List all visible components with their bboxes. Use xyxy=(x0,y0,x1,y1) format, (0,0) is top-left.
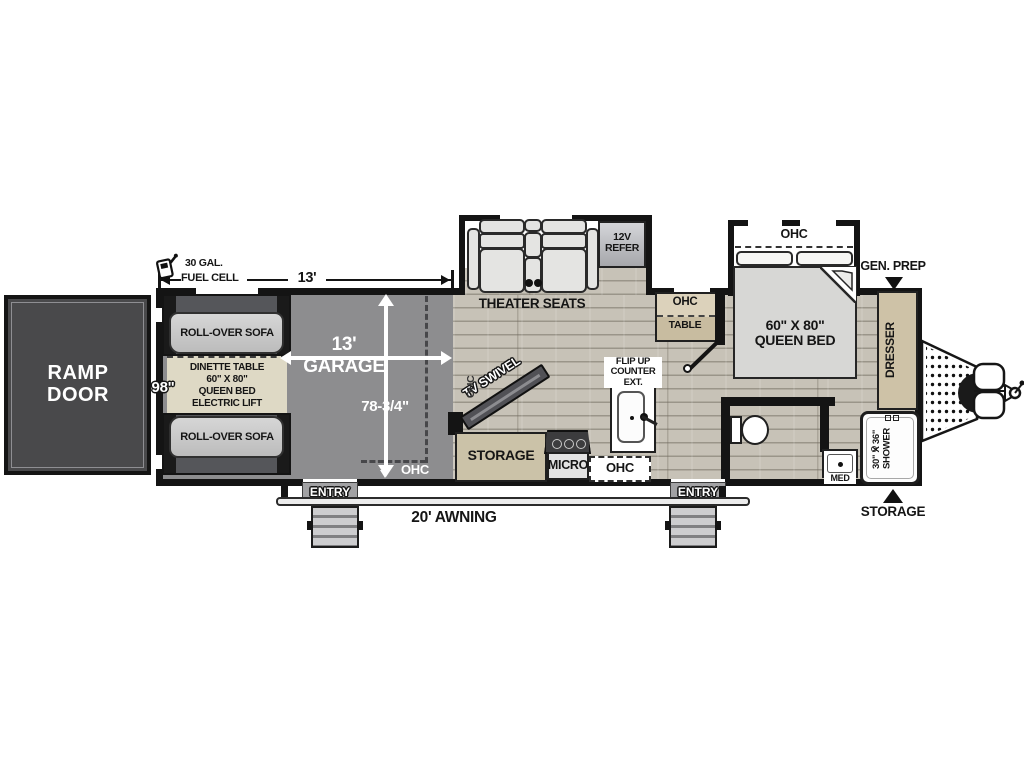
garage-height-arrow-shaft xyxy=(384,300,388,467)
gen-prep-arrow xyxy=(885,277,903,290)
flip-up-counter-label: FLIP UP COUNTER EXT. xyxy=(604,357,662,388)
fuel-amount-label: 30 GAL. xyxy=(185,258,241,269)
rv-floorplan: RAMP DOOR ROLL-OVER SOFA DINETTE TABLE 6… xyxy=(0,0,1024,768)
entry-steps-left xyxy=(311,506,359,548)
gen-prep-label: GEN. PREP xyxy=(858,260,928,274)
dim-tick-right xyxy=(451,270,454,289)
console-mid xyxy=(524,232,542,258)
bed-slide-window-left xyxy=(748,220,782,226)
arrow-right xyxy=(441,351,452,365)
step-lug xyxy=(665,521,671,530)
queen-bed-label: 60" X 80" QUEEN BED xyxy=(737,318,853,348)
entry-door-left: ENTRY xyxy=(302,482,358,498)
fuel-cell-label: FUEL CELL xyxy=(181,273,247,285)
seatcushion-left xyxy=(479,248,525,293)
storage-rear-label: STORAGE xyxy=(852,505,934,520)
ohc-table-top-label: OHC xyxy=(655,296,715,308)
kitchen-storage-label: STORAGE xyxy=(457,448,545,463)
burner xyxy=(552,439,562,449)
garage-ohc-dash-vertical xyxy=(425,296,428,463)
dinette-label: DINETTE TABLE 60" X 80" QUEEN BED ELECTR… xyxy=(170,362,284,410)
bath-wall-horizontal xyxy=(721,397,835,406)
step-lug xyxy=(307,521,313,530)
cupholder-right xyxy=(534,279,542,287)
burner xyxy=(564,439,574,449)
ramp-door-label: RAMP DOOR xyxy=(24,363,132,406)
living-ohc-side-label: OHC xyxy=(466,371,481,403)
bed-ohc-dash xyxy=(735,246,853,248)
shower-label: 30" X 36" SHOWER xyxy=(872,420,910,478)
hitch-assembly xyxy=(915,335,1024,447)
bath-wall-left xyxy=(721,397,730,479)
cupholder-left xyxy=(525,279,533,287)
toilet-bowl xyxy=(741,415,769,445)
bath-wall-mid xyxy=(820,404,829,452)
burner xyxy=(576,439,586,449)
bed-ohc-label: OHC xyxy=(734,228,854,242)
bedroom-wall-upper xyxy=(715,292,725,345)
garage-ohc-rear-label: OHC xyxy=(394,463,436,477)
headrest-left xyxy=(479,219,525,234)
microwave-label: MICRO xyxy=(546,459,590,473)
theater-seats xyxy=(467,219,599,293)
seatback-left xyxy=(479,233,525,249)
step-lug xyxy=(715,521,721,530)
awning-rail xyxy=(276,497,750,506)
step-lug xyxy=(357,521,363,530)
arrow-left xyxy=(280,351,291,365)
door-hinge xyxy=(683,364,692,373)
med-drain xyxy=(838,462,843,467)
storage-rear-arrow xyxy=(883,489,903,503)
sofa-top-label: ROLL-OVER SOFA xyxy=(168,328,286,340)
kitchen-sink-counter xyxy=(610,384,656,453)
med-label: MED xyxy=(824,474,856,484)
awning-label: 20' AWNING xyxy=(398,510,510,527)
dim-arrow-right xyxy=(441,275,450,285)
entry-steps-right xyxy=(669,506,717,548)
entry-door-right: ENTRY xyxy=(670,482,726,498)
pillow-left xyxy=(736,251,793,266)
sofa-bottom-label: ROLL-OVER SOFA xyxy=(168,432,286,444)
seatback-right xyxy=(541,233,587,249)
dresser-label: DRESSER xyxy=(884,300,911,400)
kitchen-ohc-label: OHC xyxy=(589,461,651,475)
seatcushion-right xyxy=(541,248,587,293)
theater-seats-label: THEATER SEATS xyxy=(462,297,602,312)
body-width-label: 98" xyxy=(143,380,183,396)
ohc-rear-arrow-head xyxy=(380,470,390,478)
pillow-right xyxy=(796,251,853,266)
arrow-up xyxy=(378,294,394,306)
garage-title: 13' GARAGE xyxy=(296,334,392,378)
stove xyxy=(544,430,591,454)
garage-length-label: 13' xyxy=(288,271,326,287)
console-top xyxy=(524,219,542,232)
bed-fold-corner xyxy=(820,267,856,303)
console-bottom xyxy=(524,257,542,293)
garage-interior-dim: 78-3/4" xyxy=(345,399,425,415)
ohc-table-bottom-label: TABLE xyxy=(655,320,715,331)
headrest-right xyxy=(541,219,587,234)
sink-drain xyxy=(630,416,634,420)
refrigerator-label: 12V REFER xyxy=(598,232,646,255)
bed-slide-window-right xyxy=(800,220,836,226)
